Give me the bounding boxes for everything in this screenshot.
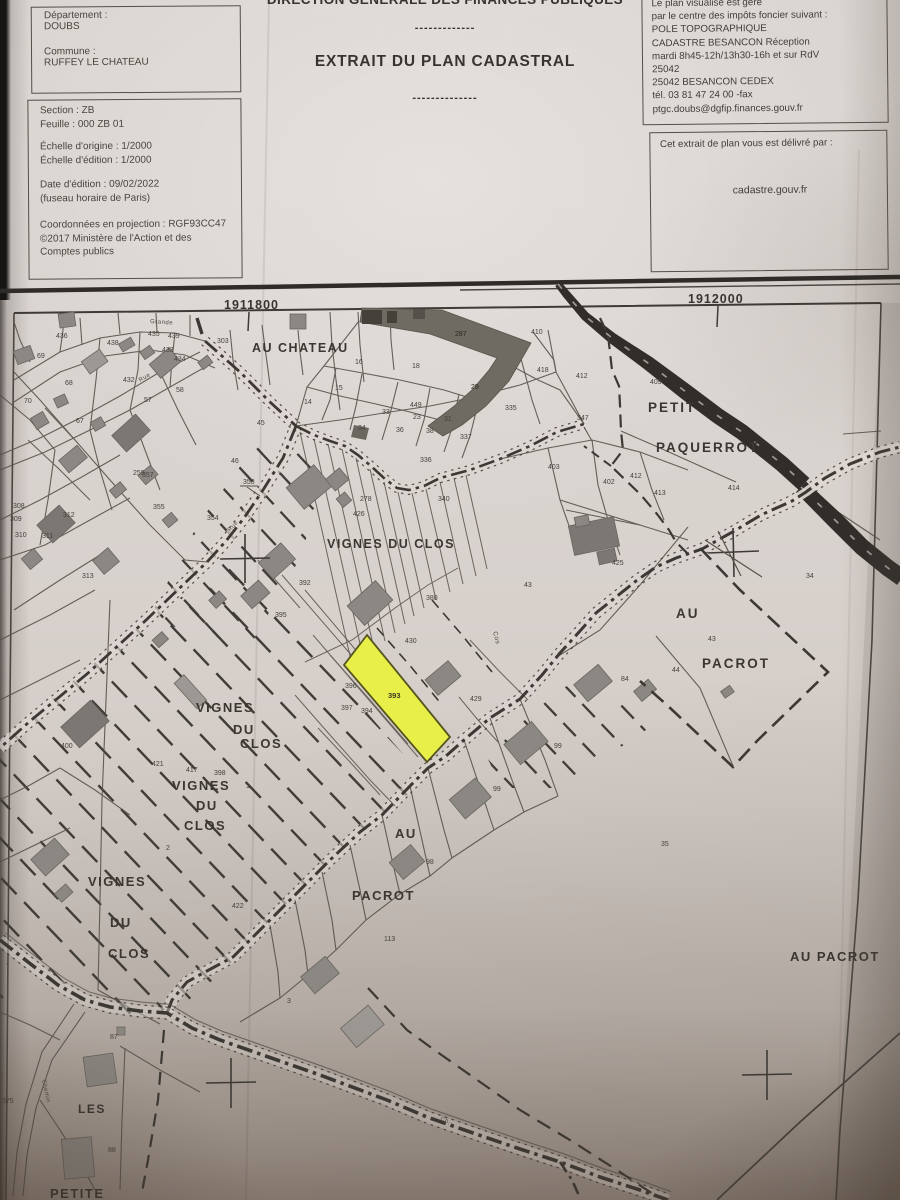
svg-text:425: 425	[612, 560, 624, 567]
svg-text:57: 57	[144, 397, 152, 404]
svg-text:396: 396	[345, 683, 357, 690]
svg-text:335: 335	[505, 405, 517, 412]
svg-text:1911800: 1911800	[224, 298, 279, 312]
svg-text:398: 398	[214, 770, 226, 777]
svg-text:67: 67	[76, 418, 84, 425]
svg-text:34: 34	[358, 425, 366, 432]
svg-text:VIGNES: VIGNES	[196, 700, 254, 715]
svg-text:336: 336	[420, 457, 432, 464]
svg-text:70: 70	[24, 398, 32, 405]
svg-text:278: 278	[360, 496, 372, 503]
svg-text:DU: DU	[110, 915, 132, 930]
svg-text:1: 1	[246, 783, 250, 790]
svg-text:375: 375	[2, 1098, 14, 1105]
svg-text:CLOS: CLOS	[240, 736, 282, 751]
svg-text:340: 340	[438, 496, 450, 503]
svg-text:VIGNES DU CLOS: VIGNES DU CLOS	[327, 537, 455, 551]
svg-text:PACROT: PACROT	[352, 888, 415, 903]
svg-text:397: 397	[341, 705, 353, 712]
svg-text:29: 29	[471, 384, 479, 391]
svg-text:69: 69	[37, 353, 45, 360]
svg-text:421: 421	[152, 761, 164, 768]
svg-text:259: 259	[133, 470, 145, 477]
svg-text:DU: DU	[233, 722, 255, 737]
svg-text:434: 434	[174, 356, 186, 363]
svg-text:34: 34	[806, 573, 814, 580]
svg-text:VIGNES: VIGNES	[88, 874, 146, 889]
svg-text:380: 380	[426, 595, 438, 602]
svg-text:PETITE: PETITE	[50, 1186, 105, 1200]
svg-text:347: 347	[577, 415, 589, 422]
svg-text:412: 412	[630, 473, 642, 480]
svg-text:68: 68	[65, 380, 73, 387]
svg-text:43: 43	[708, 636, 716, 643]
svg-text:313: 313	[82, 573, 94, 580]
svg-text:Rue: Rue	[138, 372, 152, 384]
svg-text:113: 113	[384, 936, 395, 943]
svg-text:18: 18	[412, 363, 420, 370]
svg-text:38: 38	[426, 428, 434, 435]
svg-text:418: 418	[537, 367, 549, 374]
svg-text:43: 43	[524, 582, 532, 589]
svg-text:403: 403	[548, 464, 560, 471]
svg-text:439: 439	[168, 333, 180, 340]
svg-text:36: 36	[396, 427, 404, 434]
svg-text:15: 15	[335, 385, 343, 392]
svg-text:DU: DU	[196, 798, 218, 813]
svg-text:393: 393	[388, 691, 401, 700]
svg-text:412: 412	[576, 373, 588, 380]
svg-text:3: 3	[287, 998, 291, 1005]
svg-text:Cos: Cos	[491, 631, 501, 646]
svg-text:58: 58	[176, 387, 184, 394]
svg-text:435: 435	[148, 331, 160, 338]
svg-text:417: 417	[186, 767, 198, 774]
svg-text:353: 353	[243, 479, 255, 486]
svg-text:310: 310	[15, 532, 27, 539]
svg-text:430: 430	[405, 638, 417, 645]
svg-text:LES: LES	[78, 1102, 106, 1116]
svg-text:33: 33	[382, 409, 390, 416]
svg-text:CLOS: CLOS	[184, 818, 226, 833]
svg-text:354: 354	[207, 515, 219, 522]
svg-text:31: 31	[444, 416, 452, 423]
svg-text:99: 99	[554, 743, 562, 750]
svg-text:395: 395	[275, 612, 287, 619]
svg-text:PAQUERROT: PAQUERROT	[656, 440, 759, 455]
svg-text:CLOS: CLOS	[108, 946, 150, 961]
svg-text:402: 402	[603, 479, 615, 486]
svg-text:99: 99	[493, 786, 501, 793]
svg-text:433: 433	[162, 347, 174, 354]
svg-text:AU: AU	[395, 826, 417, 841]
svg-text:287: 287	[455, 331, 467, 338]
svg-text:413: 413	[654, 490, 666, 497]
svg-text:400: 400	[61, 743, 73, 750]
svg-text:422: 422	[232, 903, 244, 910]
svg-text:46: 46	[231, 458, 239, 465]
svg-text:432: 432	[123, 377, 135, 384]
svg-text:309: 309	[10, 516, 22, 523]
svg-text:Grande: Grande	[150, 319, 174, 327]
svg-text:449: 449	[410, 402, 422, 409]
svg-text:303: 303	[217, 338, 229, 345]
svg-text:409: 409	[650, 379, 662, 386]
svg-text:87: 87	[110, 1034, 118, 1041]
svg-text:PACROT: PACROT	[702, 656, 770, 671]
svg-text:308: 308	[13, 503, 25, 510]
svg-text:23: 23	[413, 414, 421, 421]
svg-text:14: 14	[304, 399, 312, 406]
svg-text:312: 312	[63, 512, 75, 519]
svg-text:355: 355	[153, 504, 165, 511]
svg-text:35: 35	[661, 841, 669, 848]
svg-text:AU: AU	[676, 606, 700, 621]
svg-text:45: 45	[257, 420, 265, 427]
svg-text:VIGNES: VIGNES	[172, 778, 230, 793]
svg-text:414: 414	[728, 485, 740, 492]
svg-text:394: 394	[361, 708, 373, 715]
svg-text:PETIT: PETIT	[648, 400, 696, 415]
svg-text:44: 44	[672, 667, 680, 674]
svg-text:392: 392	[299, 580, 311, 587]
svg-text:88: 88	[108, 1147, 116, 1154]
svg-text:410: 410	[531, 329, 543, 336]
svg-text:1912000: 1912000	[688, 292, 744, 306]
svg-text:436: 436	[56, 333, 68, 340]
svg-text:429: 429	[470, 696, 482, 703]
svg-text:84: 84	[621, 676, 629, 683]
svg-text:98: 98	[426, 859, 434, 866]
svg-text:311: 311	[42, 533, 53, 540]
svg-text:16: 16	[355, 359, 363, 366]
svg-text:426: 426	[353, 511, 365, 518]
svg-text:438: 438	[107, 340, 119, 347]
svg-text:AU CHATEAU: AU CHATEAU	[252, 341, 349, 355]
svg-text:337: 337	[460, 434, 472, 441]
svg-text:2: 2	[166, 845, 170, 852]
